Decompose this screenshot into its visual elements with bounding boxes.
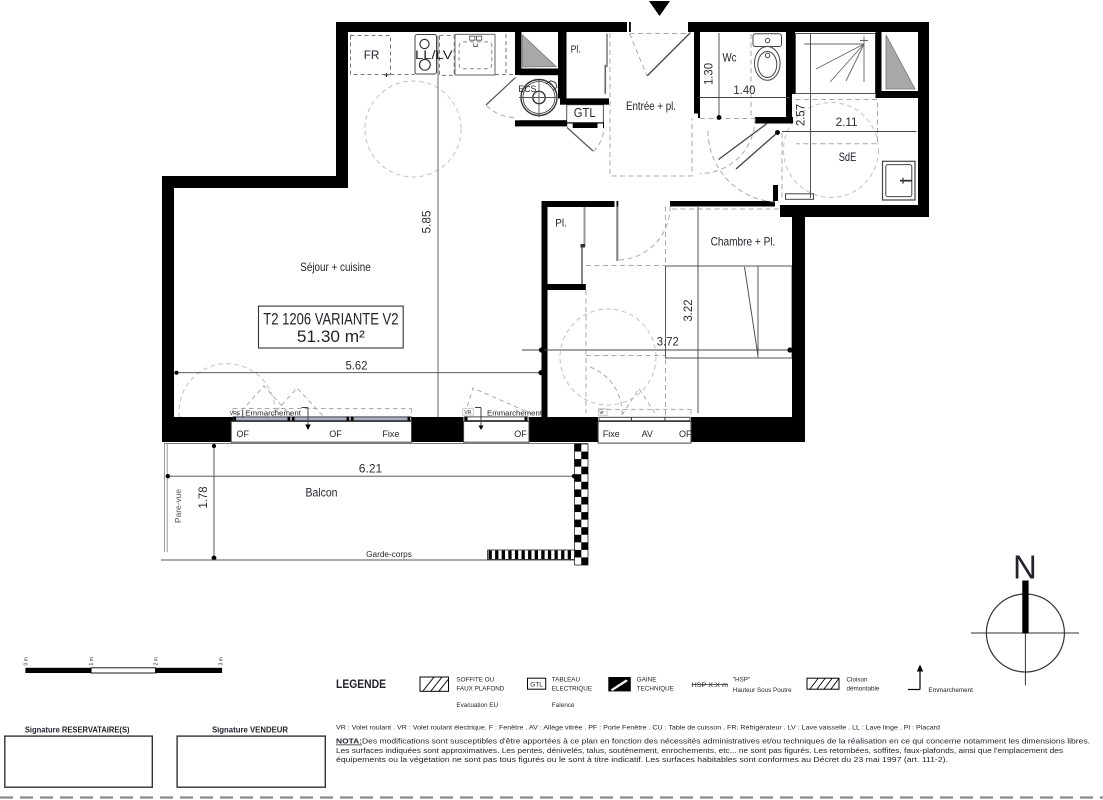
- svg-text:GTL: GTL: [574, 105, 596, 120]
- svg-text:VR: VR: [464, 410, 471, 416]
- svg-text:T2 1206 VARIANTE V2: T2 1206 VARIANTE V2: [263, 310, 398, 329]
- svg-text:2.11: 2.11: [836, 117, 858, 129]
- svg-text:Cloison: Cloison: [847, 677, 868, 684]
- svg-text:Pl.: Pl.: [555, 217, 567, 229]
- svg-text:1.40: 1.40: [733, 85, 755, 97]
- svg-text:Fixe: Fixe: [603, 429, 620, 439]
- svg-text:Des modifications sont suscept: Des modifications sont susceptibles d'êt…: [362, 737, 1090, 746]
- svg-text:Faïence: Faïence: [552, 702, 575, 709]
- svg-text:Pl.: Pl.: [571, 44, 581, 55]
- svg-text:AV: AV: [642, 429, 653, 439]
- svg-text:51.30 m²: 51.30 m²: [297, 327, 365, 346]
- svg-text:ECS: ECS: [518, 84, 536, 95]
- svg-text:SOFFITE OU: SOFFITE OU: [456, 677, 494, 684]
- svg-text:LEGENDE: LEGENDE: [336, 677, 386, 691]
- svg-text:1 m: 1 m: [89, 657, 95, 665]
- svg-text:"HSP": "HSP": [733, 677, 750, 684]
- svg-text:Emmarchement: Emmarchement: [487, 411, 542, 418]
- svg-text:NOTA:: NOTA:: [336, 737, 362, 746]
- svg-text:OF: OF: [329, 429, 342, 439]
- svg-text:Signature RESERVATAIRE(S): Signature RESERVATAIRE(S): [25, 724, 130, 734]
- svg-text:2.57: 2.57: [796, 104, 808, 126]
- svg-text:ELECTRIQUE: ELECTRIQUE: [552, 686, 592, 693]
- svg-text:VRE: VRE: [230, 411, 241, 417]
- svg-text:Hauteur Sous Poutre: Hauteur Sous Poutre: [733, 687, 792, 694]
- svg-text:Evacuation EU: Evacuation EU: [456, 702, 498, 709]
- svg-text:3.22: 3.22: [683, 300, 695, 322]
- svg-text:GAINE: GAINE: [637, 677, 657, 684]
- svg-text:Emmarchement: Emmarchement: [928, 687, 973, 694]
- svg-text:Les surfaces indiquées sont ap: Les surfaces indiquées sont approximativ…: [336, 746, 1063, 755]
- svg-text:FR: FR: [364, 50, 380, 62]
- svg-text:3.72: 3.72: [657, 337, 679, 349]
- svg-text:2 m: 2 m: [154, 657, 160, 665]
- svg-text:Signature VENDEUR: Signature VENDEUR: [212, 724, 288, 734]
- svg-text:N: N: [1013, 549, 1037, 586]
- svg-text:OF: OF: [237, 429, 250, 439]
- svg-text:6.21: 6.21: [359, 463, 382, 475]
- svg-text:SdE: SdE: [839, 150, 857, 164]
- svg-text:Séjour + cuisine: Séjour + cuisine: [300, 260, 371, 274]
- svg-text:TECHNIQUE: TECHNIQUE: [637, 686, 674, 693]
- svg-text:Fixe: Fixe: [382, 429, 399, 439]
- svg-text:5.62: 5.62: [346, 361, 368, 373]
- svg-text:Emmarchement: Emmarchement: [245, 411, 301, 418]
- svg-text:VR : Volet roulant . VR : Vole: VR : Volet roulant . VR : Volet roulant …: [336, 724, 940, 731]
- svg-text:Pare-vue: Pare-vue: [174, 488, 183, 523]
- svg-text:LL/LV: LL/LV: [415, 50, 453, 62]
- svg-text:Garde-corps: Garde-corps: [366, 550, 412, 559]
- svg-text:démontable: démontable: [847, 686, 880, 693]
- svg-text:OF: OF: [514, 429, 527, 439]
- svg-text:HSP X.X m: HSP X.X m: [692, 682, 729, 689]
- svg-text:3 m: 3 m: [219, 657, 225, 665]
- svg-text:1.30: 1.30: [704, 63, 716, 85]
- svg-text:1.78: 1.78: [198, 487, 210, 509]
- svg-text:Wc: Wc: [723, 51, 737, 65]
- svg-text:FAUX PLAFOND: FAUX PLAFOND: [456, 686, 504, 693]
- svg-text:vr: vr: [600, 410, 605, 416]
- svg-text:5.85: 5.85: [422, 211, 434, 234]
- svg-text:Entrée + pl.: Entrée + pl.: [626, 99, 676, 113]
- svg-text:Chambre + Pl.: Chambre + Pl.: [711, 235, 776, 249]
- svg-text:OF: OF: [679, 429, 692, 439]
- svg-text:Balcon: Balcon: [306, 486, 338, 500]
- svg-text:TABLEAU: TABLEAU: [552, 677, 581, 684]
- svg-text:0 m: 0 m: [23, 657, 29, 665]
- svg-text:GTL: GTL: [530, 682, 543, 689]
- svg-text:équipements ou la végétation n: équipements ou la végétation ne sont pas…: [336, 755, 948, 764]
